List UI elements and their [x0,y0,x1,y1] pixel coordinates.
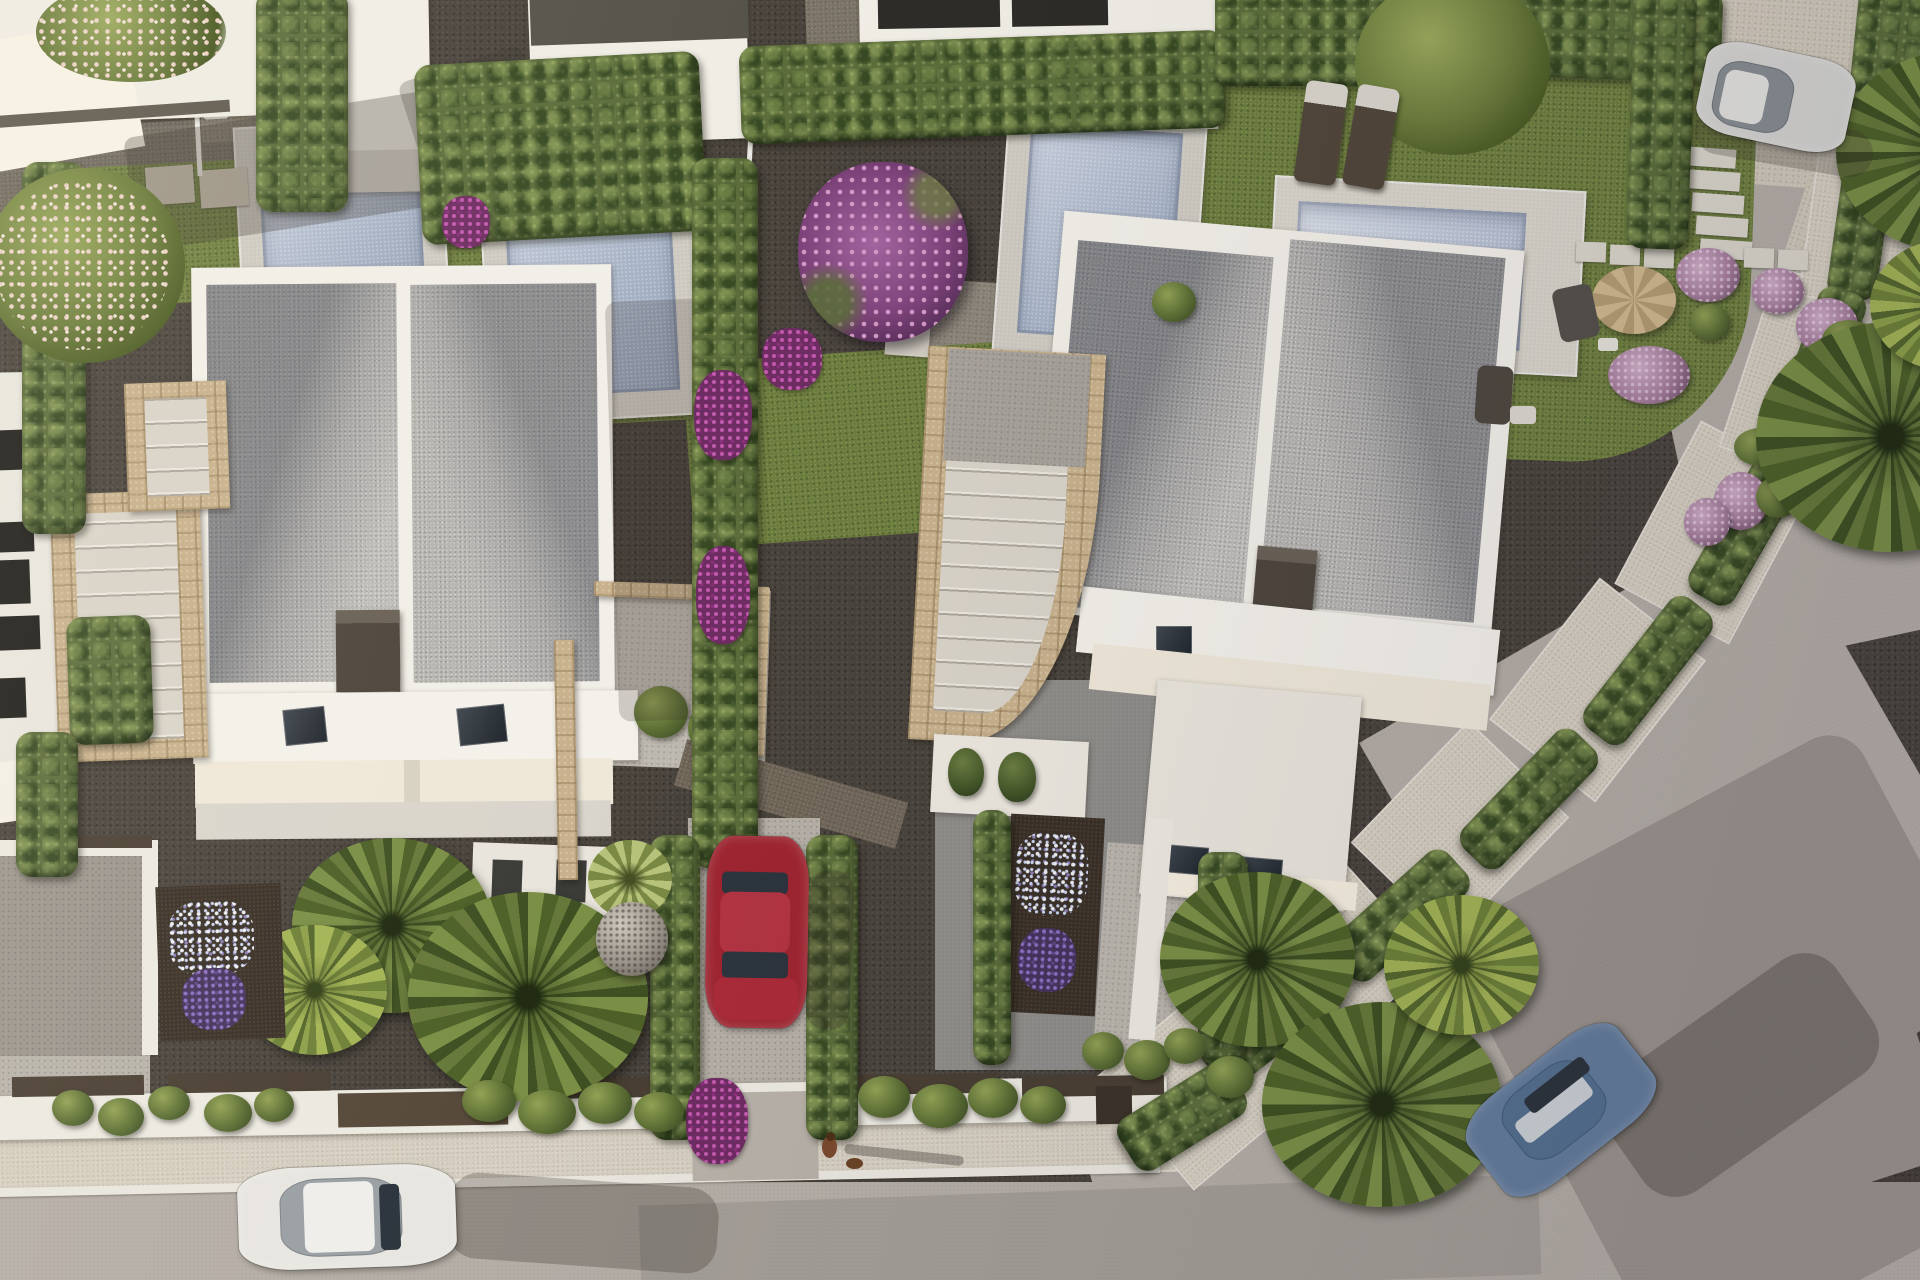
stepping-slab-v4 [1695,215,1748,238]
hedge-center [692,158,758,868]
stepping-slab-v3 [1691,192,1744,215]
stone-sphere [596,902,668,976]
sidewalk-bush-2 [98,1098,144,1136]
white-car-roof [303,1181,375,1253]
court-wall-right [142,840,158,1055]
villa1-flowers-purple [181,967,247,1031]
sidewalk-bush-10 [858,1076,910,1118]
building-d-window-1 [878,0,1001,29]
green-bush-5 [1152,282,1196,322]
red-car-shadow [805,869,855,1030]
sidewalk-bush-11 [912,1084,968,1128]
white-car-windshield [379,1184,401,1251]
building-c-court [529,0,749,46]
hedge-top-left [256,0,348,212]
green-bush-1 [1690,304,1730,340]
sidewalk-bush-9 [634,1092,684,1132]
stepping-slab-h1 [1576,241,1607,262]
dog [846,1158,863,1169]
hedge-driveway [1626,0,1697,250]
red-car-hood [714,977,799,1020]
red-car-windshield [722,951,788,978]
building-left-window-4 [0,615,41,651]
building-left-window-5 [0,677,27,718]
parasol-table [1592,266,1676,334]
garden-chair-2 [1474,365,1514,425]
villa2-porch-shrub-1 [948,748,984,796]
bougainvillea-4 [442,196,490,248]
pink-bush-1 [1676,248,1740,302]
parasol-white-item [1598,338,1618,351]
sidewalk-bush-4 [204,1094,252,1132]
villa2-stair-terrace [943,348,1091,467]
sidewalk-bush-12 [968,1078,1018,1118]
blossom-dots-2 [0,180,170,350]
pink-bush-2 [1752,268,1804,314]
villa2-porch-shrub-2 [998,752,1036,802]
villa1-walkway-floor [144,397,209,497]
pink-bush-4 [1608,346,1690,404]
sidewalk-bush-5 [254,1088,294,1122]
villa2-flowers-white [1012,830,1090,918]
sidewalk-bush-8 [578,1082,632,1124]
aerial-villa-render [0,0,1920,1280]
villa1-annex-rail-left [554,640,578,880]
sidewalk-bush-17 [1206,1056,1254,1098]
sidewalk-bush-1 [52,1090,94,1126]
garden-side-table [1510,406,1536,424]
purple-tree [798,162,968,342]
stepping-slab-h2 [1610,244,1641,265]
stepping-slab-h4 [1744,247,1775,268]
building-left-window-3 [0,559,31,604]
villa1-stair-planter [66,615,154,746]
sidewalk-bush-7 [518,1090,576,1134]
building-d-window-2 [1012,0,1108,27]
sidewalk-bush-16 [1164,1028,1206,1064]
villa1-terrace-notch [404,760,420,806]
sidewalk-bush-3 [148,1086,190,1120]
purple-tree-spill [762,328,822,390]
hedge-top-2 [738,30,1226,145]
pink-bush-7 [1684,498,1730,546]
villa1-skylight-1 [282,706,328,746]
red-car-roof [719,891,790,954]
bougainvillea-3 [686,1078,748,1164]
villa1-roof-shadow-right [410,283,599,683]
person-head [826,1132,835,1141]
palm-se-3 [1384,895,1539,1035]
villa1-chimney [336,610,401,693]
sidewalk-bush-14 [1082,1032,1124,1070]
bougainvillea-1 [694,370,752,460]
villa1-flowers-white [167,899,256,978]
villa1-front-shade [196,800,611,840]
hedge-left-2 [16,732,78,877]
wall-cap-2 [168,1071,330,1094]
bougainvillea-2 [696,546,750,644]
hedge-front-3 [973,810,1011,1065]
stepping-slab-v2 [1687,169,1740,192]
sidewalk-bush-13 [1020,1086,1066,1124]
court-inner-shade [0,856,142,1056]
stepping-slab-h3 [1644,247,1675,268]
villa1-skylight-2 [456,704,508,747]
sidewalk-bush-6 [462,1080,516,1122]
